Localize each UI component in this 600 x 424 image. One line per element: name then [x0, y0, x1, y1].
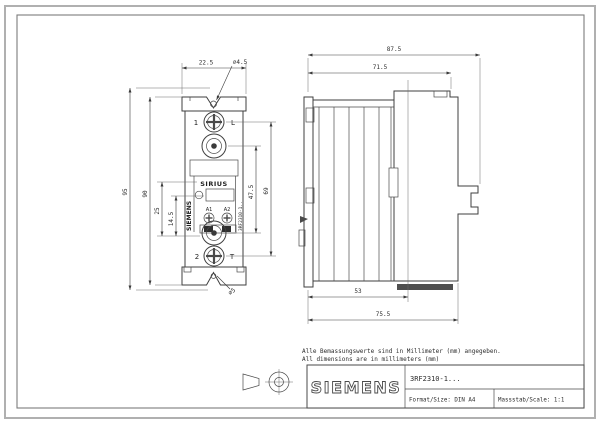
dim-heatsink-depth: 53 [354, 288, 362, 295]
dim-body-depth: 71.5 [373, 64, 388, 71]
dim-led-offset: 25 [154, 207, 161, 215]
dim-coil-offset: 14.5 [168, 211, 175, 226]
terminal-2-screw [204, 246, 224, 266]
part-number: 3RF2310-1... [410, 375, 461, 383]
dim-width-top: 22.5 [199, 60, 214, 67]
dim-screw-pitch: 69 [263, 187, 270, 195]
drawing-canvas: 1 L SIRIUS A1 A2 SIE [0, 0, 600, 424]
coil-opening-a2 [222, 226, 231, 232]
mark-l-label: L [231, 119, 235, 127]
drawing-sheet: 1 L SIRIUS A1 A2 SIE [0, 0, 600, 424]
dim-height-outer: 95 [122, 188, 129, 196]
coil-a2-label: A2 [224, 207, 231, 213]
terminal-1-label: 1 [194, 119, 198, 127]
title-block: SIEMENS 3RF2310-1... Format/Size: DIN A4… [307, 365, 584, 408]
sirius-label: SIRIUS [200, 180, 227, 188]
din-rail-bar [397, 284, 453, 290]
format-size: Format/Size: DIN A4 [409, 398, 476, 404]
dim-din-depth: 75.5 [376, 311, 391, 318]
dim-terminal-pitch: 47.5 [248, 184, 255, 199]
scale: Massstab/Scale: 1:1 [498, 398, 565, 404]
side-connector-bump [389, 168, 398, 197]
note-german: Alle Bemassungswerte sind in Millimeter … [302, 348, 501, 355]
vertical-brand-label: SIEMENS [186, 201, 193, 231]
mark-t-label: T [229, 253, 235, 261]
terminal-1-screw [204, 112, 224, 132]
dim-hole-top: ⌀4.5 [233, 59, 248, 66]
vertical-part-label: 3RF2310-1.. [238, 201, 244, 231]
frame-outer [5, 6, 595, 418]
note-english: All dimensions are in millimeters (mm) [302, 356, 439, 363]
coil-a1-label: A1 [206, 207, 213, 213]
siemens-logo: SIEMENS [311, 378, 402, 397]
coil-opening-a1 [204, 226, 213, 232]
terminal-2-label: 2 [195, 253, 199, 261]
dim-total-depth: 87.5 [387, 46, 402, 53]
dim-height-body: 90 [142, 190, 149, 198]
